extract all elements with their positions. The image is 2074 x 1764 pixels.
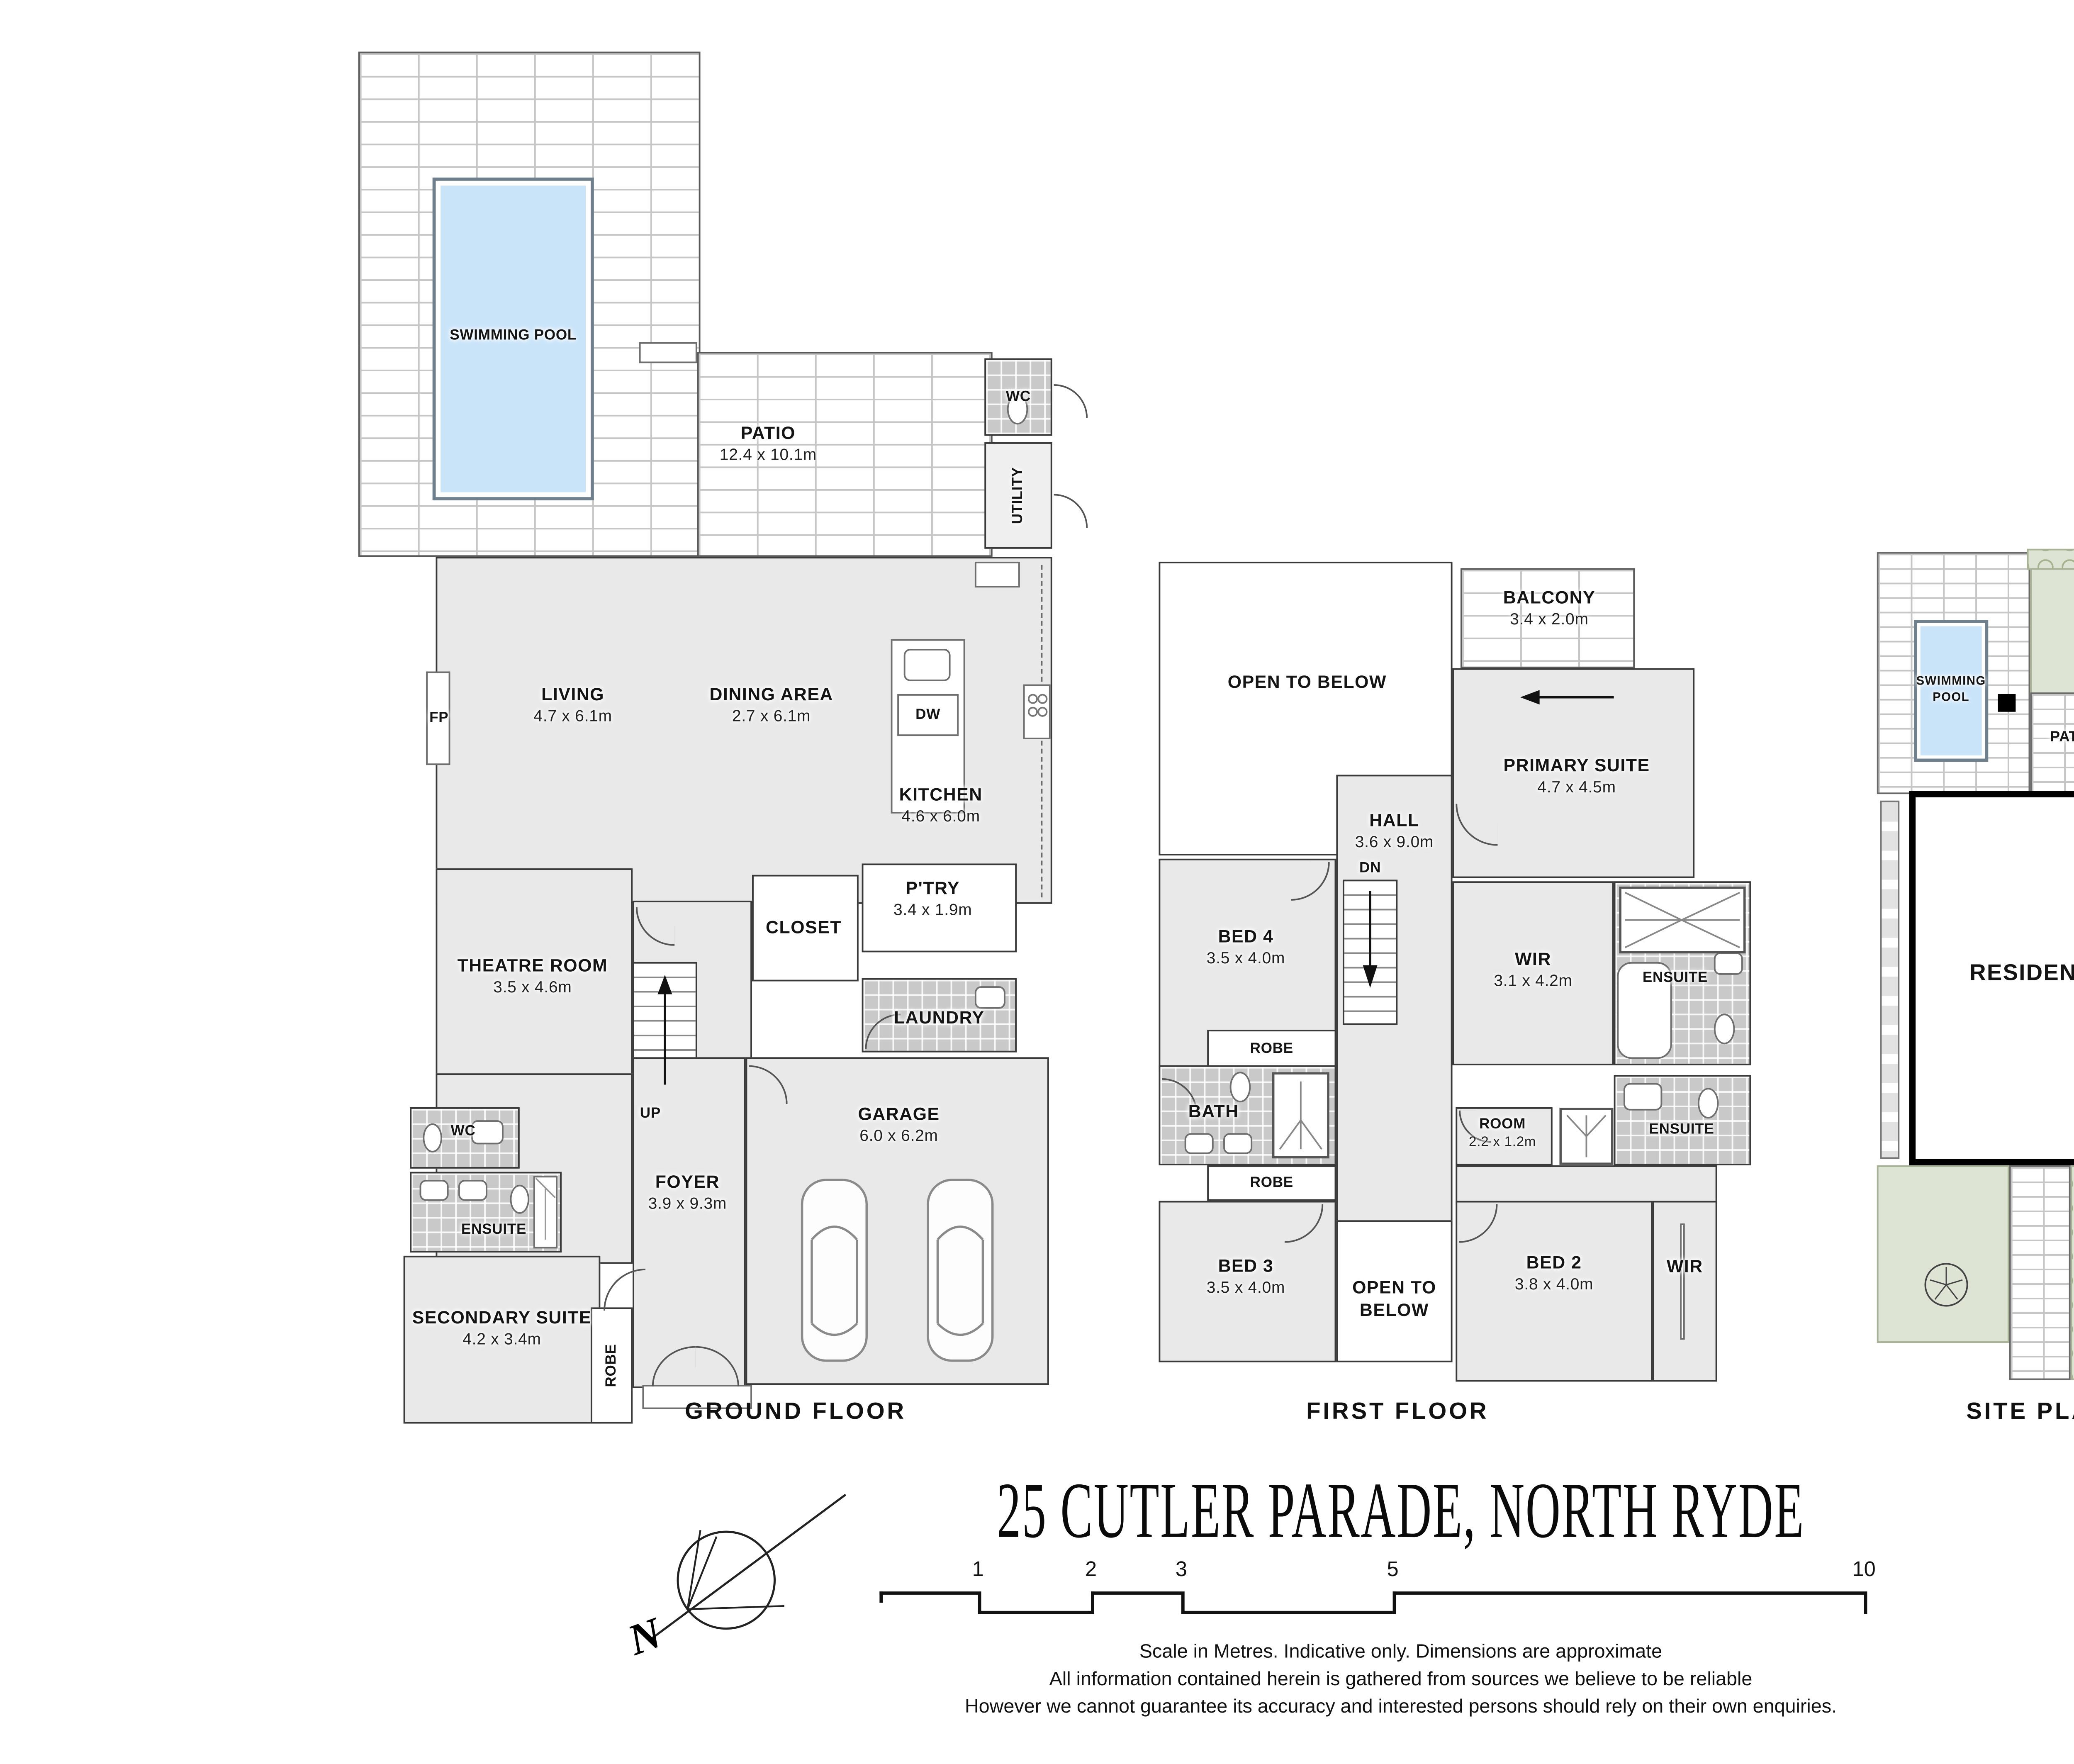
wir-bed2-label: WIR [1667,1257,1703,1279]
bed2-label: BED 23.8 x 4.0m [1515,1254,1593,1296]
scale-bar-step [1091,1591,1093,1614]
cooktop-burners-icon [1026,691,1049,733]
wc-door [1054,384,1088,418]
scale-bar-segment [1181,1611,1393,1614]
ensuite-g-label: ENSUITE [461,1221,526,1239]
open-below-bottom-label: OPEN TO BELOW [1343,1279,1446,1323]
shower-icon [533,1175,558,1249]
disclaimer-line-1: Scale in Metres. Indicative only. Dimens… [1139,1640,1662,1662]
wardrobe-rail-icon [1680,1223,1685,1340]
sink-icon [471,1120,504,1144]
site-left-fence [1880,801,1900,1159]
scale-bar-segment [1091,1591,1181,1595]
compass-icon: N [626,1488,852,1658]
ensuite-primary-label: ENSUITE [1643,969,1708,987]
toilet-icon [510,1185,529,1214]
island-sink-icon [904,649,951,681]
scale-bar-step [879,1591,882,1603]
wc-upper-label: WC [1006,388,1031,406]
scale-tick-3: 3 [1176,1557,1187,1581]
scale-bar-segment [978,1611,1091,1614]
toilet-icon [1698,1088,1719,1118]
dining-label: DINING AREA2.7 x 6.1m [709,686,833,728]
secondary-suite-door [604,1269,645,1311]
sink-icon [420,1180,449,1201]
disclaimer-line-2: All information contained herein is gath… [1049,1667,1753,1690]
toilet-icon [423,1123,442,1152]
car-icon [923,1175,997,1365]
entry-arrow-icon [1520,687,1617,707]
patio-label: PATIO12.4 x 10.1m [720,424,817,467]
up-arrow-icon [655,975,675,1088]
car-icon [797,1175,871,1365]
kitchen-sink-counter [975,562,1020,587]
bath-label: BATH [1188,1103,1239,1125]
scale-tick-10: 10 [1852,1557,1875,1581]
scale-tick-5: 5 [1387,1557,1399,1581]
tree-icon [1922,1261,1971,1309]
toilet-icon [1714,1014,1735,1044]
robe-top-label: ROBE [1250,1040,1293,1058]
secondary-suite-label: SECONDARY SUITE4.2 x 3.4m [412,1309,592,1351]
wc-lower-label: WC [451,1122,476,1140]
floorplan-page: SWIMMING POOL PATIO12.4 x 10.1m WC UTILI… [0,0,2074,1764]
page-title: 25 CUTLER PARADE, NORTH RYDE [997,1464,1805,1557]
balcony-label: BALCONY3.4 x 2.0m [1503,589,1596,631]
site-shrub-divider [2071,1165,2074,1380]
page-scaler: SWIMMING POOL PATIO12.4 x 10.1m WC UTILI… [0,0,2074,1764]
swimming-pool-label: SWIMMING POOL [450,326,577,345]
ground-floor-title: GROUND FLOOR [685,1399,906,1425]
sink-icon [1714,952,1743,975]
open-below-top-label: OPEN TO BELOW [1228,673,1387,695]
down-arrow-icon [1361,891,1380,988]
shower-icon [1559,1107,1614,1165]
first-floor-title: FIRST FLOOR [1306,1399,1489,1425]
dw-label: DW [915,706,940,724]
scale-tick-2: 2 [1085,1557,1097,1581]
site-plan-title: SITE PLAN [1966,1399,2074,1425]
utility-label: UTILITY [1009,467,1027,524]
scale-bar-segment [879,1591,978,1595]
first-corridor-fill [1456,1165,1717,1204]
sink-icon [458,1180,487,1201]
scale-bar-step [1393,1591,1395,1614]
wir-primary-label: WIR3.1 x 4.2m [1494,950,1572,993]
laundry-sink-icon [975,986,1005,1009]
site-walkway [2009,1165,2071,1380]
bed3-label: BED 33.5 x 4.0m [1207,1257,1285,1299]
living-label: LIVING4.7 x 6.1m [533,686,612,728]
bed4-label: BED 43.5 x 4.0m [1207,928,1285,970]
scale-bar-segment [1393,1591,1864,1595]
site-hedge-top [2027,549,2074,570]
scale-bar-step [978,1591,981,1614]
shower-icon [1272,1072,1330,1159]
pantry-label: P'TRY3.4 x 1.9m [893,880,972,922]
sink-icon [1223,1133,1252,1154]
sink-icon [1185,1133,1214,1154]
site-patio-label: PATIO [2050,729,2074,747]
disclaimer-line-3: However we cannot guarantee its accuracy… [965,1695,1837,1717]
sink-icon [1624,1083,1662,1111]
fp-label: FP [429,709,448,727]
utility-door [1054,494,1088,528]
site-garden-bottom-left [1877,1165,2009,1343]
up-label: UP [640,1105,661,1123]
robe-bottom-label: ROBE [1250,1174,1293,1192]
room-small-label: ROOM2.2 x 1.2m [1469,1116,1536,1151]
laundry-label: LAUNDRY [894,1009,985,1031]
kitchen-label: KITCHEN4.6 x 6.0m [899,786,983,828]
site-pool-label: SWIMMING POOL [1909,673,1993,705]
foyer-label: FOYER3.9 x 9.3m [648,1173,727,1216]
dn-label: DN [1359,859,1381,877]
scale-tick-1: 1 [972,1557,984,1581]
closet-label: CLOSET [766,919,842,940]
ensuite-2-label: ENSUITE [1649,1121,1714,1139]
pool-equipment-icon [1998,694,2016,712]
garage-label: GARAGE6.0 x 6.2m [858,1106,940,1148]
compass-north-letter: N [621,1608,669,1664]
scale-bar-step [1181,1591,1184,1614]
scale-bar-step [1864,1591,1867,1614]
shower-icon [1619,886,1746,954]
theatre-label: THEATRE ROOM3.5 x 4.6m [458,957,608,999]
hall-label: HALL3.6 x 9.0m [1355,811,1434,854]
site-residence-label: RESIDENCE [1969,959,2074,987]
robe-g-label: ROBE [603,1344,621,1387]
toilet-icon [1230,1072,1251,1102]
primary-suite-label: PRIMARY SUITE4.7 x 4.5m [1504,757,1650,799]
patio-step [639,342,697,363]
